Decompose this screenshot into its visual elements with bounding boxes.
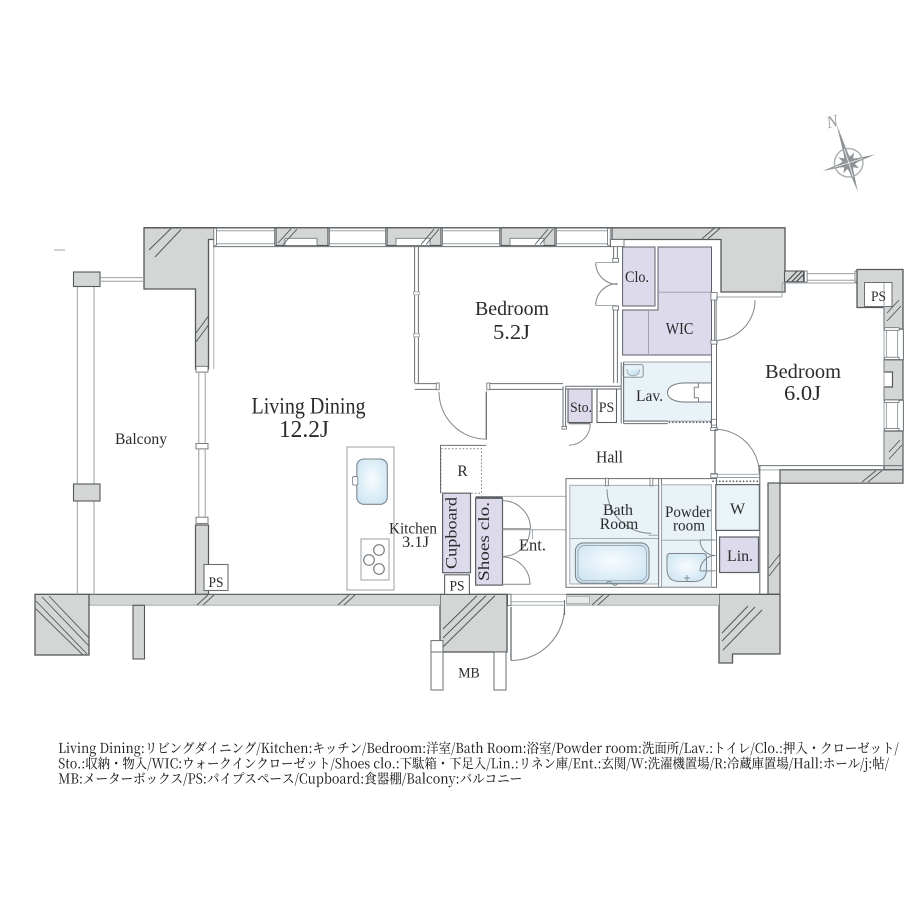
svg-text:3.1J: 3.1J <box>402 534 429 551</box>
svg-text:Lav.: Lav. <box>636 388 663 405</box>
svg-text:12.2J: 12.2J <box>279 417 329 443</box>
svg-text:PS: PS <box>871 289 886 305</box>
svg-text:W: W <box>730 501 746 518</box>
svg-text:Shoes clo.: Shoes clo. <box>476 502 493 581</box>
svg-text:PS: PS <box>209 575 224 591</box>
svg-text:Lin.: Lin. <box>727 548 753 565</box>
svg-text:Bedroom: Bedroom <box>765 361 841 383</box>
svg-text:Ent.: Ent. <box>519 536 546 555</box>
svg-text:Living Dining: Living Dining <box>252 394 366 419</box>
svg-text:Balcony: Balcony <box>115 431 167 448</box>
svg-text:Clo.: Clo. <box>625 269 649 286</box>
svg-text:MB: MB <box>458 666 480 682</box>
svg-text:6.0J: 6.0J <box>784 381 821 405</box>
svg-text:room: room <box>673 518 706 535</box>
svg-text:PS: PS <box>599 400 615 416</box>
svg-text:Bedroom: Bedroom <box>475 298 549 320</box>
svg-text:Room: Room <box>600 516 639 533</box>
svg-text:PS: PS <box>450 579 465 595</box>
svg-text:WIC: WIC <box>666 319 694 338</box>
svg-text:R: R <box>457 463 468 480</box>
svg-text:5.2J: 5.2J <box>493 320 530 344</box>
svg-text:Sto.: Sto. <box>570 400 592 416</box>
svg-text:Hall: Hall <box>596 448 623 467</box>
svg-text:Cupboard: Cupboard <box>444 497 461 569</box>
